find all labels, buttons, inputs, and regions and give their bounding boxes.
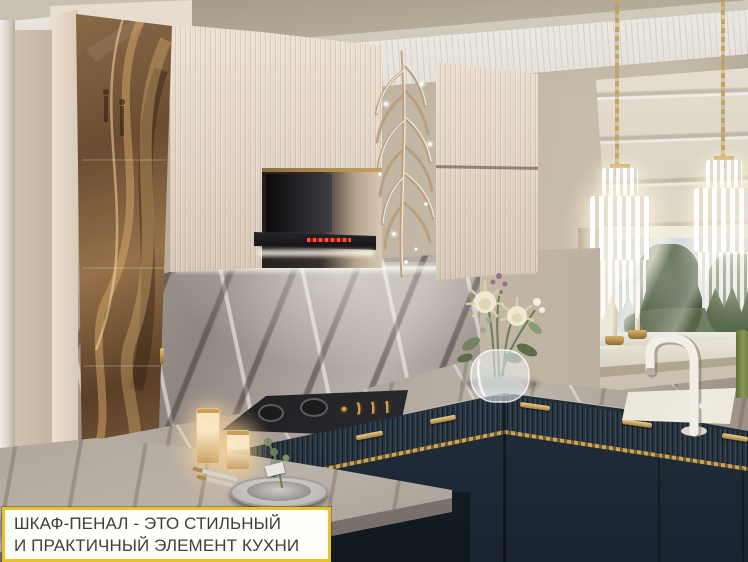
caption-line-2: И ПРАКТИЧНЫЙ ЭЛЕМЕНТ КУХНИ bbox=[14, 535, 328, 557]
wall-pilaster bbox=[0, 20, 15, 506]
pendant-chain bbox=[615, 0, 619, 176]
green-bottle bbox=[736, 330, 748, 398]
faucet bbox=[610, 318, 730, 438]
caption-box: ШКАФ-ПЕНАЛ - ЭТО СТИЛЬНЫЙ И ПРАКТИЧНЫЙ Э… bbox=[2, 507, 331, 562]
cabinet-corner-seam bbox=[503, 393, 506, 562]
tall-cabinet-glass-door bbox=[76, 10, 172, 466]
door-seam bbox=[742, 468, 744, 562]
pendant-fringe bbox=[594, 260, 646, 320]
glass-silhouettes bbox=[103, 89, 125, 136]
tall-cabinet-side bbox=[52, 8, 78, 494]
hob-burner bbox=[300, 398, 328, 417]
pendant-chain bbox=[721, 0, 725, 168]
wall-strip-left bbox=[15, 30, 55, 500]
carved-feather-panel bbox=[372, 44, 438, 282]
niche-gold-edge bbox=[262, 168, 382, 172]
feather-carving bbox=[372, 44, 438, 282]
door-seam bbox=[658, 452, 660, 562]
pendant-light bbox=[694, 156, 748, 314]
hood-led-light bbox=[258, 250, 374, 256]
glass-door-decor bbox=[76, 10, 172, 466]
caption-line-1: ШКАФ-ПЕНАЛ - ЭТО СТИЛЬНЫЙ bbox=[14, 513, 328, 535]
candle-holder-glass bbox=[196, 408, 220, 464]
pendant-tier-top bbox=[602, 168, 638, 196]
candle-holder-glass bbox=[226, 430, 250, 470]
tall-cabinet-handle bbox=[160, 348, 164, 364]
kitchen-photo: ШКАФ-ПЕНАЛ - ЭТО СТИЛЬНЫЙ И ПРАКТИЧНЫЙ Э… bbox=[0, 0, 748, 562]
pendant-tier-main bbox=[694, 188, 748, 252]
flower-vase bbox=[443, 258, 553, 408]
hood-display bbox=[307, 238, 351, 242]
range-hood-chimney bbox=[266, 174, 332, 232]
pendant-tier-top bbox=[706, 160, 742, 188]
pendant-fringe bbox=[698, 252, 748, 312]
